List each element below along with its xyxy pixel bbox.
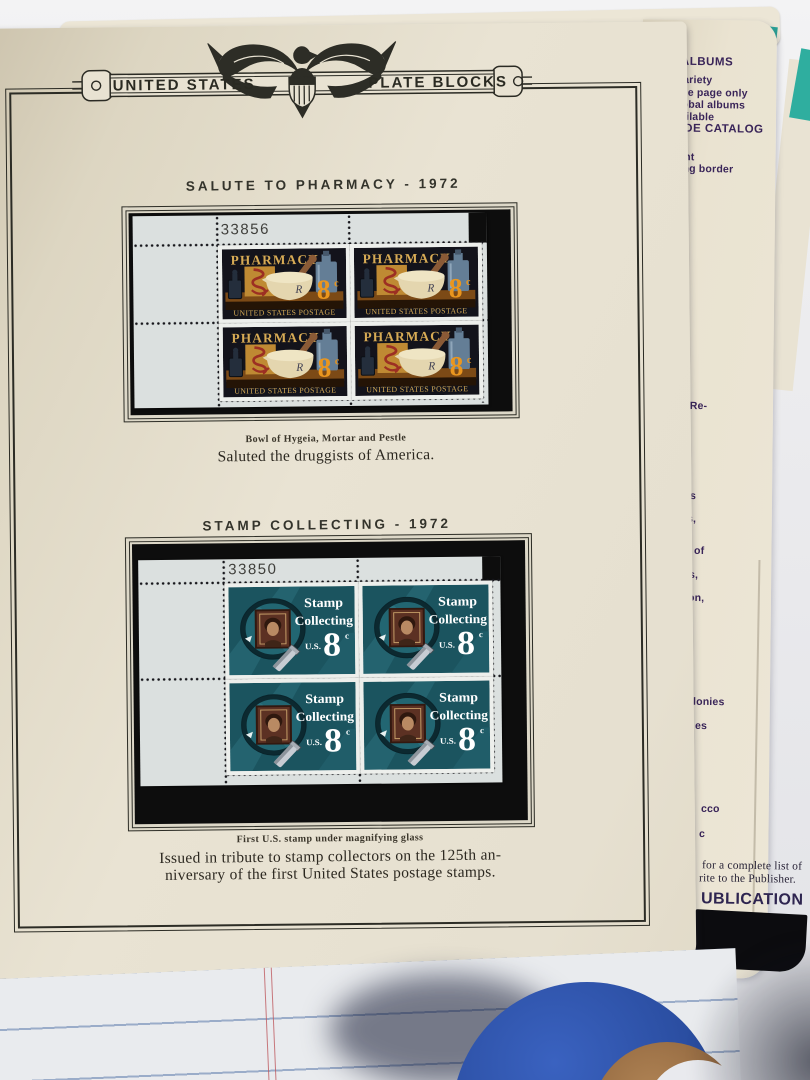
pharmacy-selvage-paper: 33856: [133, 213, 489, 409]
jacket-note-line: for a complete list of: [702, 859, 802, 872]
collecting-stamp: [358, 581, 493, 678]
jacket-text-fragment: cco: [701, 803, 720, 815]
collecting-stamp: [225, 678, 360, 775]
jacket-text-fragment: of: [694, 545, 704, 557]
collecting-stamp: [359, 677, 494, 774]
plate-number: 33856: [221, 221, 270, 239]
banner-left-label: UNITED STATES: [113, 76, 256, 94]
jacket-text-fragment: c: [699, 828, 705, 840]
mount-notch: [469, 213, 487, 243]
collecting-stamp: [224, 582, 359, 679]
pharmacy-stamp: [218, 244, 351, 323]
jacket-note-line: rite to the Publisher.: [699, 872, 796, 885]
plate-number: 33850: [228, 561, 277, 579]
mount-notch: [482, 556, 500, 580]
collecting-plate-block: 33850: [125, 533, 535, 831]
pharmacy-plate-block: 33856: [121, 202, 519, 422]
collecting-selvage-paper: 33850: [138, 556, 502, 786]
page-header-banner: UNITED STATES PLATE BLOCKS: [72, 37, 533, 147]
album-page: UNITED STATES PLATE BLOCKS SALUTE TO PHA…: [0, 21, 696, 978]
jacket-publication-label: UBLICATION: [701, 890, 804, 909]
banner-right-label: PLATE BLOCKS: [368, 73, 508, 91]
jacket-text-fragment: lonies: [693, 696, 725, 708]
paper-margin-line: [264, 968, 278, 1080]
photo-scene: PHARMACY R 8 c: [0, 0, 810, 1080]
pharmacy-stamp: [351, 321, 484, 400]
pharmacy-stamp: [350, 243, 483, 322]
jacket-text-fragment: es: [695, 720, 707, 732]
pharmacy-stamp: [219, 322, 352, 401]
